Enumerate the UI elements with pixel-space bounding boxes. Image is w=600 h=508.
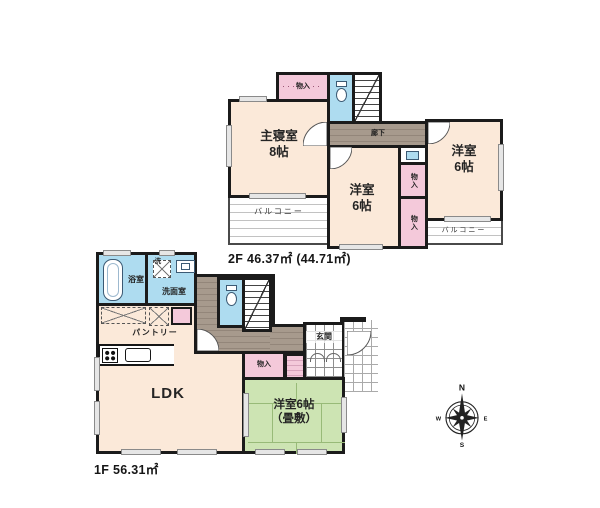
pantry-cabinet (171, 307, 192, 325)
window (342, 398, 346, 432)
tatami-line (296, 442, 297, 454)
window (256, 450, 284, 454)
compass-north-label: N (459, 382, 465, 392)
storage-1f-label: 物入 (245, 354, 283, 377)
sink-basin-icon (181, 263, 190, 270)
porch-wall (340, 317, 366, 322)
toilet-room-1f (217, 277, 245, 328)
compass-west-label: W (436, 417, 442, 423)
toilet-icon (336, 88, 347, 102)
tatami-room-label: 洋室6帖 （畳敷） (252, 396, 336, 428)
master-bedroom-size: 8帖 (269, 145, 288, 161)
window (95, 358, 99, 390)
pantry-label: パントリー (113, 327, 197, 339)
toilet-room-2f (327, 72, 355, 124)
western-room-right-name: 洋室 (451, 144, 476, 160)
storage-1f: 物入 (242, 351, 286, 380)
window (227, 126, 231, 166)
toilet-tank-icon (336, 81, 347, 87)
stairs-1f (242, 277, 272, 332)
step-arc (326, 353, 341, 362)
toilet-icon (226, 292, 237, 306)
window (298, 450, 326, 454)
stove-icon (102, 348, 118, 363)
balcony-right: バルコニー (425, 218, 503, 245)
master-bedroom-name: 主寝室 (260, 129, 298, 145)
tatami-room-name: 洋室6帖 (274, 398, 315, 412)
door-arc-west-center (330, 147, 352, 169)
bathtub-icon (103, 259, 123, 301)
pantry-closet (101, 307, 146, 324)
stairs-2f (352, 72, 382, 124)
kitchen-sink-icon (125, 348, 151, 362)
tatami-room-note: （畳敷） (271, 412, 317, 426)
window (160, 251, 174, 255)
toilet-tank-icon (226, 285, 237, 291)
window (104, 251, 130, 255)
balcony-right-label: バルコニー (427, 225, 501, 237)
window (95, 402, 99, 434)
entrance-label: 玄関 (306, 331, 342, 343)
window (499, 145, 503, 190)
step-arc (310, 353, 325, 362)
door-arc-west-right (428, 122, 450, 144)
window (178, 450, 216, 454)
western-room-right-size: 6帖 (454, 160, 473, 176)
window (122, 450, 160, 454)
balcony-left-label: バルコニー (230, 205, 328, 219)
window (445, 217, 490, 221)
storage-2f-lower-label: 物入 (401, 199, 425, 246)
window (240, 97, 266, 101)
ldk-label: LDK (128, 384, 208, 404)
storage-2f-upper: 物入 (398, 162, 428, 199)
pantry-closet (149, 307, 169, 326)
entrance-genkan: 玄関 (303, 322, 345, 380)
washroom-label: 洗面室 (150, 285, 198, 298)
window (250, 194, 305, 198)
western-room-right-label: 洋室 6帖 (430, 143, 498, 177)
washbasin-icon (406, 151, 419, 160)
western-room-center-label: 洋室 6帖 (330, 182, 394, 216)
bathroom: 浴室 (96, 252, 148, 306)
storage-2f-top: 物入 (276, 72, 330, 102)
balcony-left: バルコニー (228, 195, 330, 245)
washing-machine-label: 洗 (153, 258, 163, 267)
door-arc-master (303, 122, 327, 146)
washroom: 洗 洗面室 (145, 252, 197, 306)
compass-south-label: S (460, 442, 465, 448)
floor-plan-canvas: バルコニー バルコニー 物入 物入 物入 (0, 0, 600, 508)
door-arc-ldk (197, 329, 219, 351)
storage-2f-top-label: 物入 (279, 75, 327, 99)
western-room-center-name: 洋室 (349, 183, 374, 199)
hallway-2f-label: 廊下 (360, 128, 396, 140)
sliding-door (244, 394, 248, 436)
floor2-area-label: 2F 46.37㎡ (44.71㎡) (228, 248, 351, 267)
floor1-area-label: 1F 56.31㎡ (94, 459, 159, 478)
compass-east-label: E (484, 417, 488, 423)
storage-2f-upper-label: 物入 (401, 165, 425, 196)
front-door-arc (347, 331, 371, 355)
storage-2f-lower: 物入 (398, 196, 428, 249)
western-room-center-size: 6帖 (352, 199, 371, 215)
compass-rose: N W E S (433, 382, 491, 448)
